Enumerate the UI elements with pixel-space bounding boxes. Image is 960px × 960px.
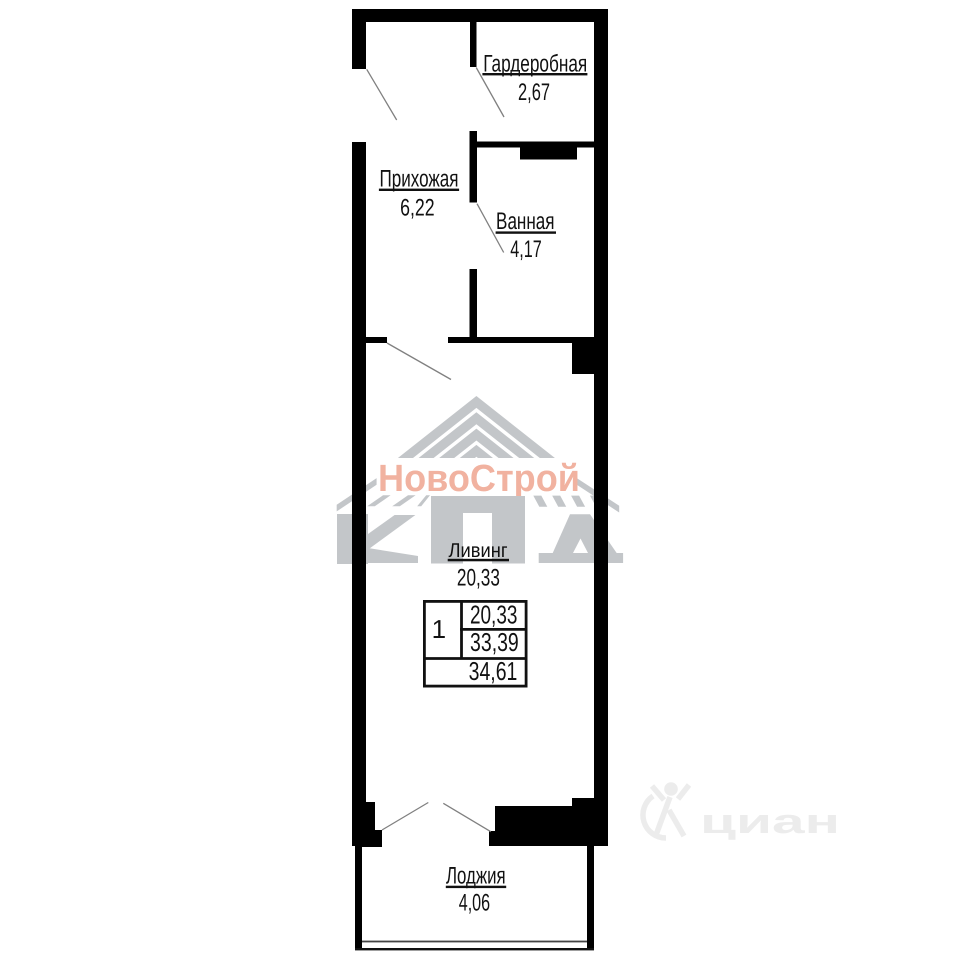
svg-text:Ванная: Ванная xyxy=(496,208,555,235)
svg-text:6,22: 6,22 xyxy=(400,195,435,222)
svg-text:33,39: 33,39 xyxy=(470,627,519,657)
svg-text:Прихожая: Прихожая xyxy=(380,166,459,193)
svg-text:Лоджия: Лоджия xyxy=(446,863,506,890)
svg-text:циан: циан xyxy=(700,803,840,841)
svg-text:2,67: 2,67 xyxy=(518,79,550,106)
svg-text:НовоСтрой: НовоСтрой xyxy=(378,458,580,500)
svg-text:20,33: 20,33 xyxy=(470,600,518,630)
svg-text:Ливинг: Ливинг xyxy=(449,540,508,562)
svg-text:1: 1 xyxy=(432,614,446,644)
svg-text:4,06: 4,06 xyxy=(459,890,490,917)
svg-text:34,61: 34,61 xyxy=(469,656,518,686)
svg-text:20,33: 20,33 xyxy=(457,565,500,592)
svg-text:4,17: 4,17 xyxy=(510,236,542,263)
